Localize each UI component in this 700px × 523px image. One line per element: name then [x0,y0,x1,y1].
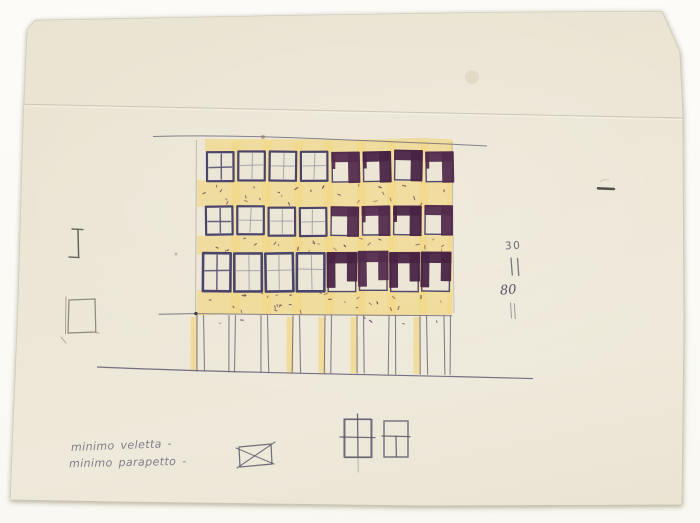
handwritten-note-parapetto: minimo parapetto - [69,455,187,470]
paper-surface: minimo veletta - minimo parapetto - 30 8… [0,0,700,523]
dimension-note-30: 30 [505,240,522,253]
scan-background: minimo veletta - minimo parapetto - 30 8… [0,0,700,523]
dimension-note-80: 80 [499,282,517,298]
paper-sheet: minimo veletta - minimo parapetto - 30 8… [0,0,700,523]
